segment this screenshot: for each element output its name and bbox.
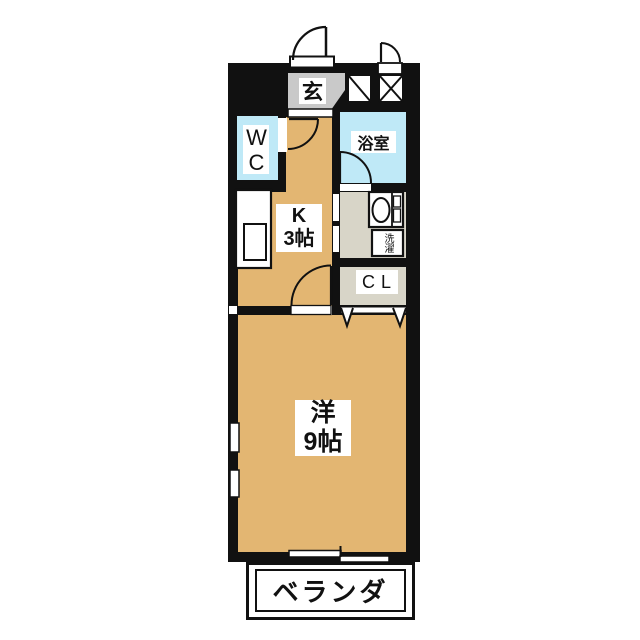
closet-folding-door-left [341,308,353,326]
entrance-step [288,109,333,117]
left-window-upper [230,423,239,452]
left-window-lower [230,470,239,497]
main-room-label-text: 洋 9帖 [304,399,343,457]
entrance-door-swing-arc [293,27,326,60]
hall-door-swing-arc [288,119,318,149]
bathroom-door-swing-arc [340,152,371,183]
service-door-swing-arc [381,43,400,62]
balcony-window-pane-left [289,551,341,558]
kitchen-label: K 3帖 [276,204,322,252]
bathroom-label-text: 浴室 [357,130,389,154]
bathroom-label: 浴室 [351,131,396,153]
washbasin-bowl [373,198,390,222]
floor-plan: ベランダ [0,0,640,640]
entrance-label-text: 玄 [302,76,323,106]
laundry-label: 洗濯 [374,231,401,255]
washbasin-shelf-1 [394,196,401,207]
kitchen-sink [244,224,266,260]
kitchen-label-text: K 3帖 [283,205,314,251]
entrance-door-opening [290,57,334,68]
bathroom-door-opening [340,184,371,191]
wc-door-opening [278,118,287,152]
washbasin-shelf-2 [394,209,401,222]
wc-label-text: WC [243,125,269,175]
entrance-label: 玄 [299,78,326,104]
main-room-label: 洋 9帖 [295,400,351,456]
closet-folding-door-right [393,308,406,326]
laundry-label-text: 洗濯 [380,233,395,253]
wc-label: WC [243,125,269,174]
balcony-window-pane-right [340,556,389,562]
closet-label-text: CL [362,272,397,293]
kitchen-door-swing-arc [292,266,332,306]
washroom-sliding-door-tick [332,221,340,226]
kitchen-door-opening [291,306,331,315]
service-door-opening [378,63,402,74]
closet-label: CL [356,270,398,294]
left-wall-notch [229,306,237,314]
